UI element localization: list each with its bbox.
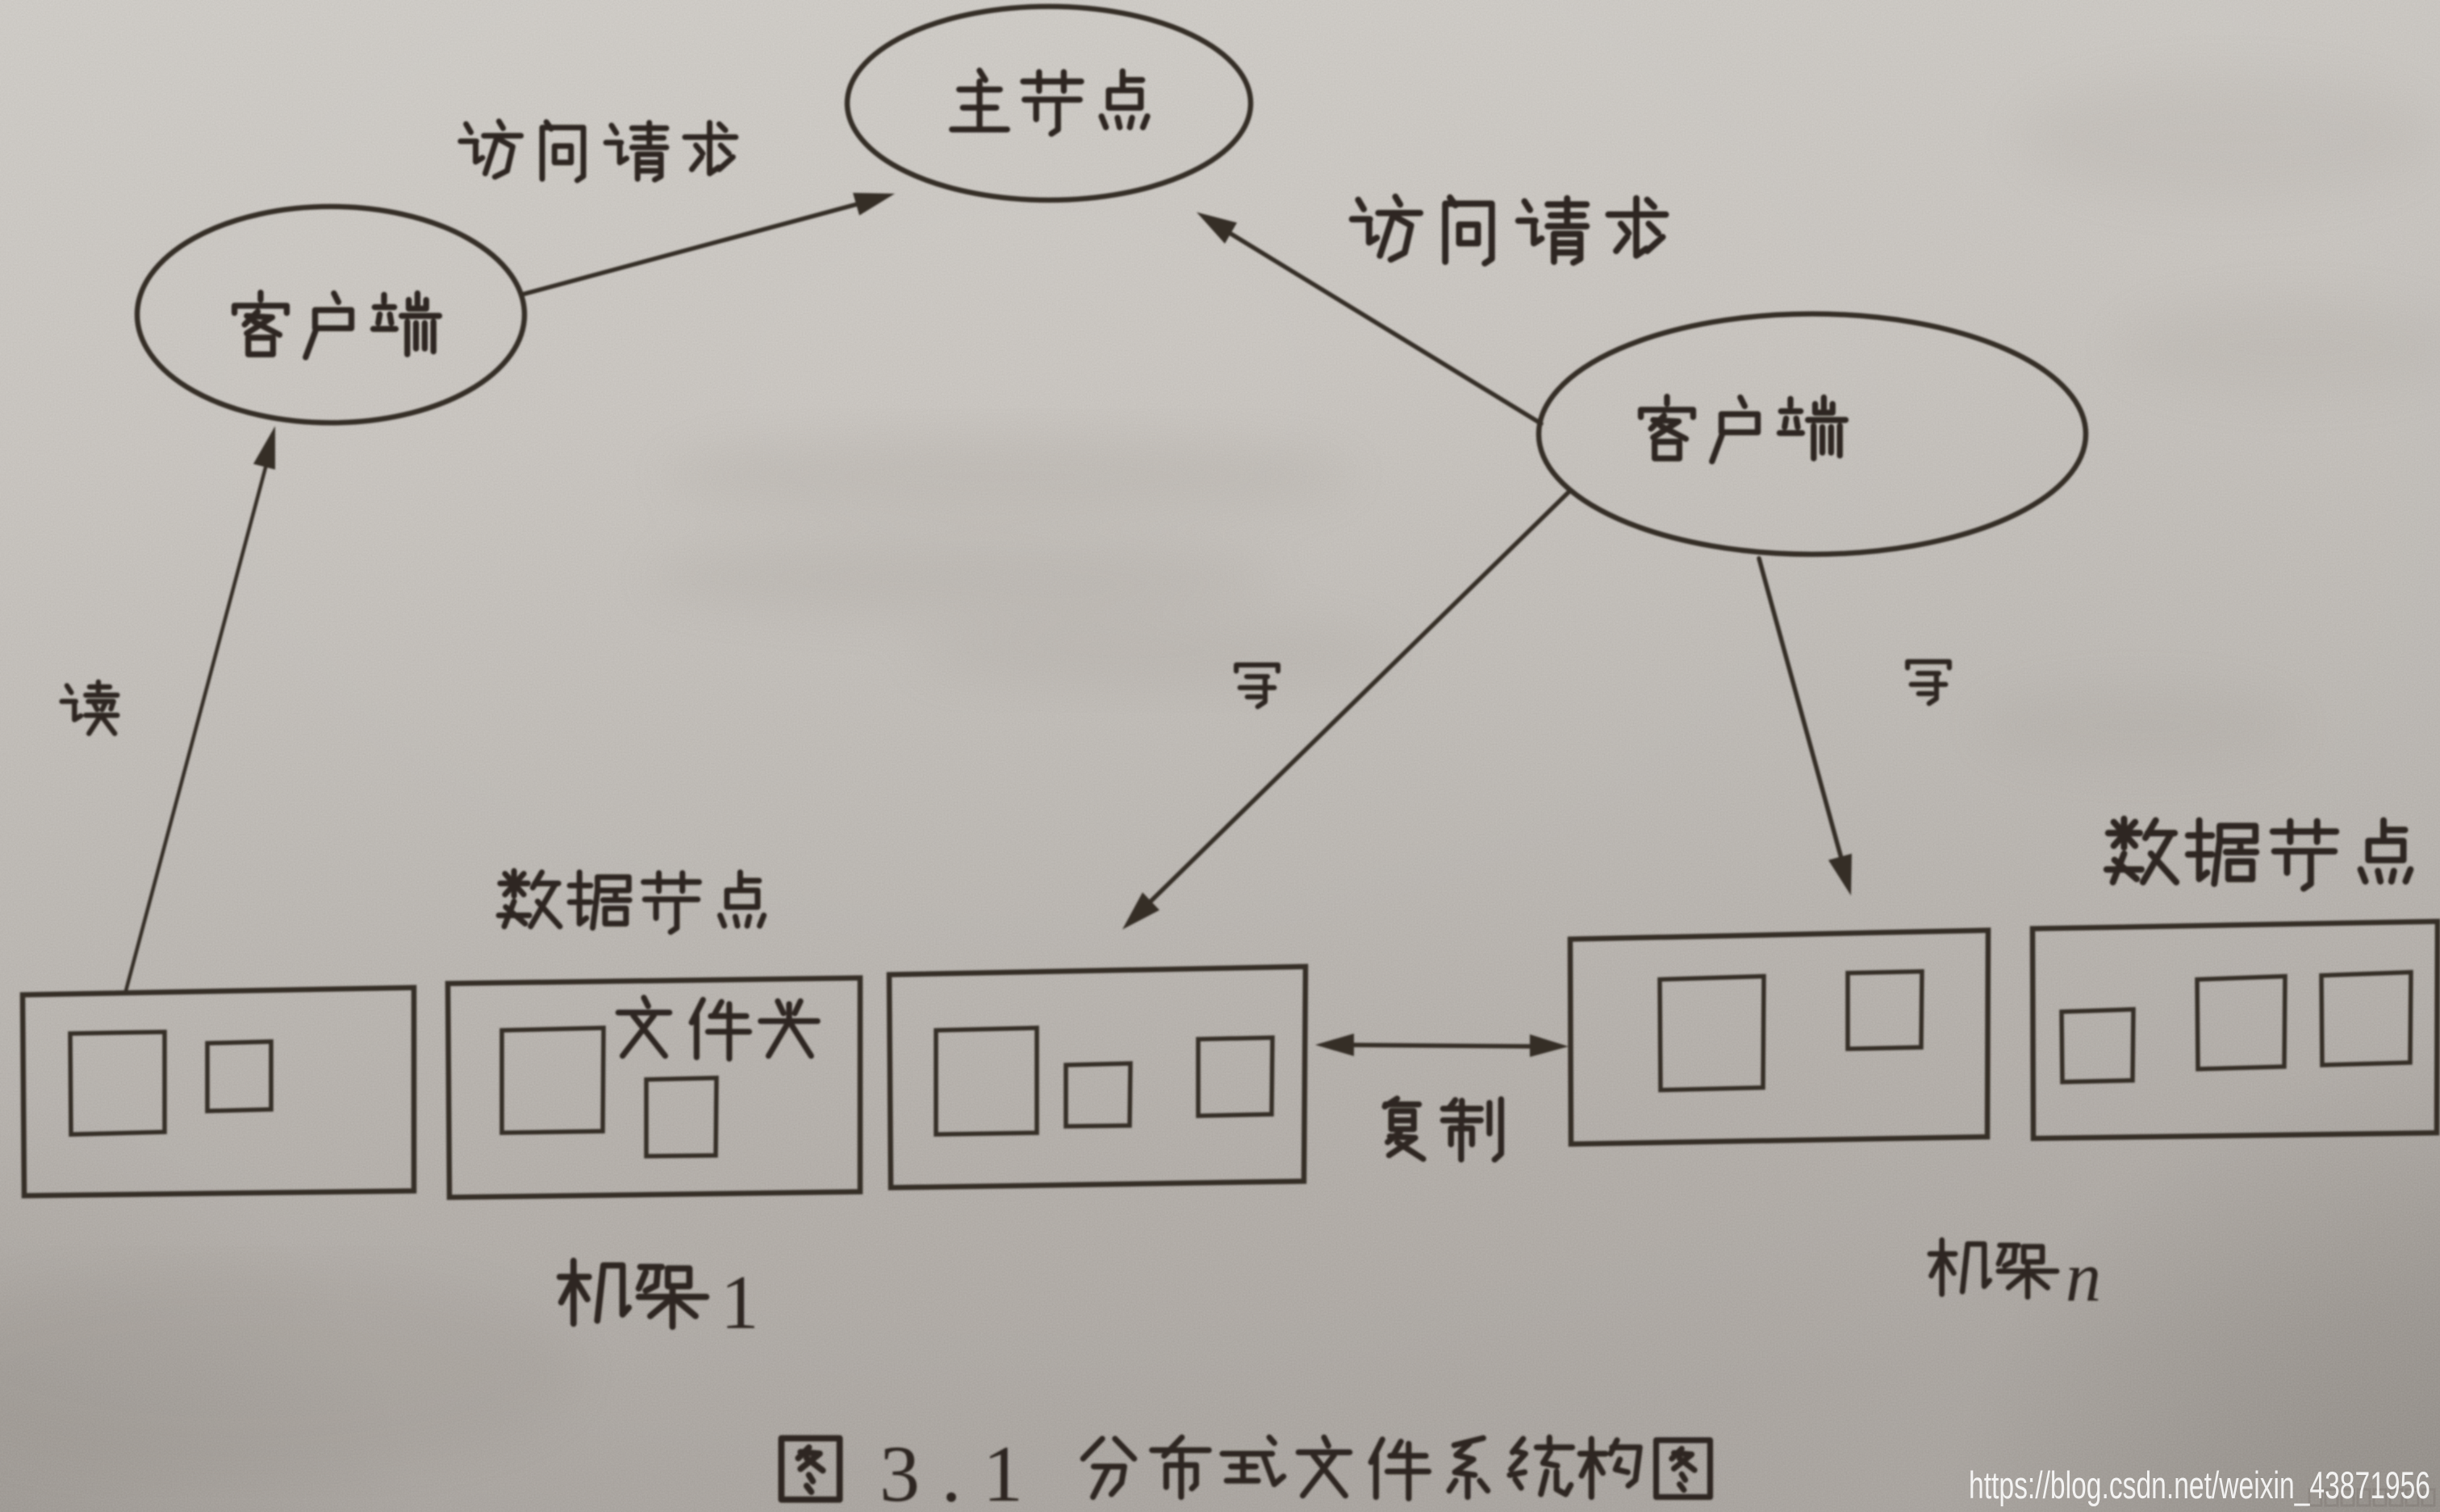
svg-text:n: n <box>2066 1238 2101 1317</box>
svg-text:3.1: 3.1 <box>879 1429 1023 1512</box>
svg-text:1: 1 <box>721 1259 759 1345</box>
svg-text:https://blog.csdn.net/weixin_4: https://blog.csdn.net/weixin_43871956 <box>1969 1464 2430 1506</box>
